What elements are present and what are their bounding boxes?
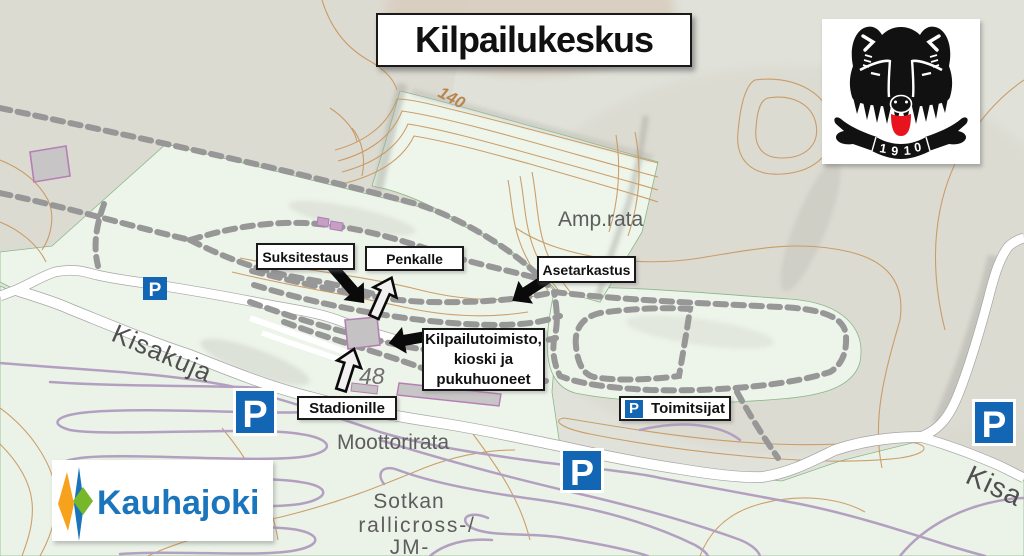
svg-text:P: P [149, 280, 162, 301]
svg-text:P: P [982, 404, 1007, 445]
svg-text:rallicross-/: rallicross-/ [358, 514, 475, 537]
svg-text:Amp.rata: Amp.rata [558, 208, 644, 231]
svg-text:1: 1 [903, 144, 911, 158]
svg-text:P: P [242, 394, 267, 436]
svg-text:P: P [570, 452, 594, 493]
svg-text:Sotkan: Sotkan [373, 490, 444, 513]
svg-text:9: 9 [891, 144, 899, 158]
svg-text:JM-: JM- [390, 536, 430, 556]
svg-text:Moottorirata: Moottorirata [337, 431, 449, 454]
svg-text:48: 48 [359, 363, 385, 389]
svg-text:Kauhajoki: Kauhajoki [97, 484, 259, 522]
